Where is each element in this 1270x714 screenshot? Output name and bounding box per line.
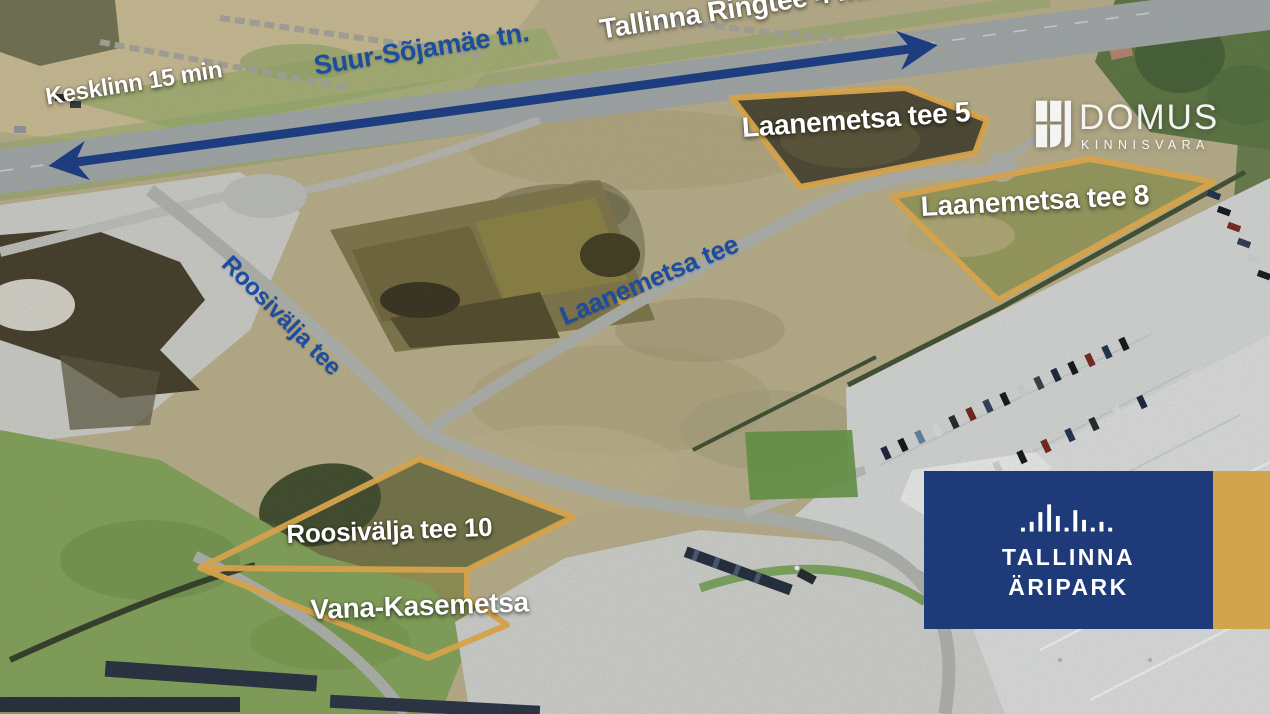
plot-divider-vana-kasemetsa bbox=[200, 568, 467, 570]
aripark-logo-line1: TALLINNA bbox=[1002, 544, 1135, 571]
aripark-logo-line2: ÄRIPARK bbox=[1008, 574, 1129, 601]
domus-window-icon bbox=[1036, 100, 1071, 153]
domus-logo: DOMUS KINNISVARA bbox=[1036, 100, 1219, 153]
plot-label-roosivalja-10: Roosivälja tee 10 bbox=[286, 514, 493, 547]
domus-logo-name: DOMUS bbox=[1079, 100, 1219, 135]
gold-accent-block bbox=[1213, 471, 1270, 629]
domus-logo-subtitle: KINNISVARA bbox=[1079, 138, 1219, 152]
skyline-bars-icon bbox=[1021, 500, 1117, 537]
tallinna-aripark-logo: TALLINNA ÄRIPARK bbox=[924, 471, 1213, 629]
aerial-map-image: Kesklinn 15 min Suur-Sõjamäe tn. Tallinn… bbox=[0, 0, 1270, 714]
